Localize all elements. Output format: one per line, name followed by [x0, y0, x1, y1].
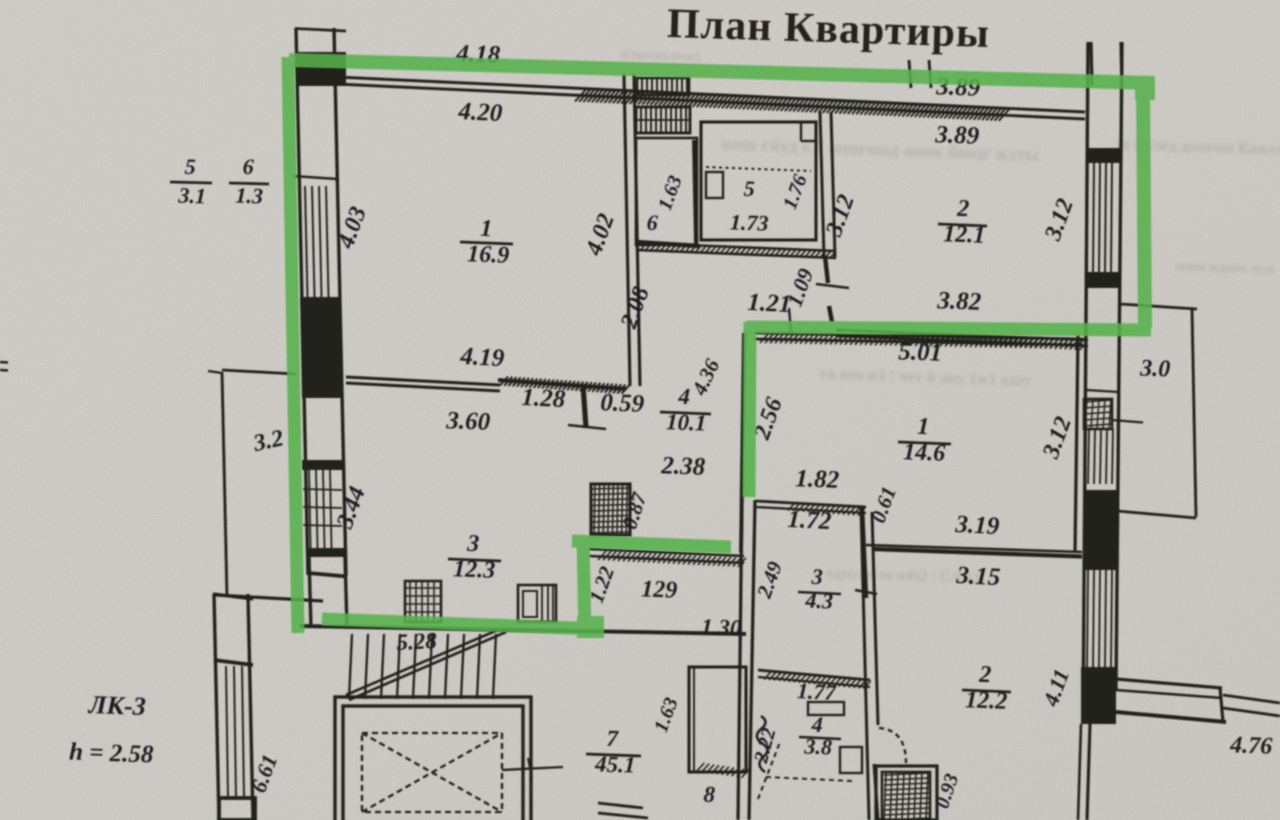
svg-text:2: 2 — [978, 662, 992, 688]
svg-text:5.28: 5.28 — [396, 628, 438, 655]
svg-text:12.1: 12.1 — [943, 221, 986, 248]
svg-text:4.19: 4.19 — [459, 343, 506, 372]
svg-text:5.01: 5.01 — [898, 338, 943, 367]
svg-text:129: 129 — [641, 576, 678, 603]
svg-text:3.15: 3.15 — [955, 562, 1001, 591]
svg-text:1.73: 1.73 — [730, 209, 769, 235]
svg-text:6: 6 — [242, 154, 254, 179]
svg-text:6: 6 — [646, 210, 658, 235]
svg-text:2: 2 — [956, 196, 970, 222]
svg-text:0.59: 0.59 — [600, 389, 645, 418]
svg-text:12.2: 12.2 — [965, 687, 1008, 714]
svg-text:1.30: 1.30 — [701, 614, 743, 640]
svg-text:3.60: 3.60 — [445, 407, 491, 436]
svg-text:ЛК-3: ЛК-3 — [87, 690, 146, 721]
svg-text:h = 2.58: h = 2.58 — [69, 739, 155, 769]
svg-text:4.3: 4.3 — [804, 587, 833, 613]
svg-text:2.38: 2.38 — [660, 452, 706, 481]
svg-text:10.1: 10.1 — [666, 409, 707, 435]
svg-text:3: 3 — [466, 531, 480, 557]
svg-text:3: 3 — [810, 564, 823, 589]
svg-text:3.0: 3.0 — [1139, 355, 1171, 382]
svg-text:3.8: 3.8 — [803, 733, 832, 759]
svg-text:5: 5 — [184, 154, 196, 179]
svg-text:12.3: 12.3 — [453, 556, 496, 583]
svg-text:3.89: 3.89 — [934, 121, 980, 150]
svg-text:3.82: 3.82 — [936, 287, 982, 316]
svg-text:3.19: 3.19 — [954, 511, 1001, 540]
svg-text:1.3: 1.3 — [235, 183, 263, 209]
svg-text:1: 1 — [917, 414, 930, 440]
svg-text:1.77: 1.77 — [797, 678, 838, 705]
svg-text:1.28: 1.28 — [521, 384, 567, 413]
svg-text:3.1: 3.1 — [177, 182, 206, 208]
svg-text:4.76: 4.76 — [1229, 732, 1273, 759]
svg-text:8: 8 — [703, 782, 716, 807]
svg-text:5: 5 — [743, 176, 755, 201]
svg-text:1: 1 — [480, 216, 493, 242]
svg-text:45.1: 45.1 — [594, 751, 636, 777]
svg-text:1.72: 1.72 — [787, 506, 832, 535]
svg-text:4.20: 4.20 — [457, 98, 504, 127]
svg-text:14.6: 14.6 — [903, 439, 946, 466]
svg-text:16.9: 16.9 — [467, 241, 510, 268]
svg-text:1.82: 1.82 — [795, 465, 840, 494]
